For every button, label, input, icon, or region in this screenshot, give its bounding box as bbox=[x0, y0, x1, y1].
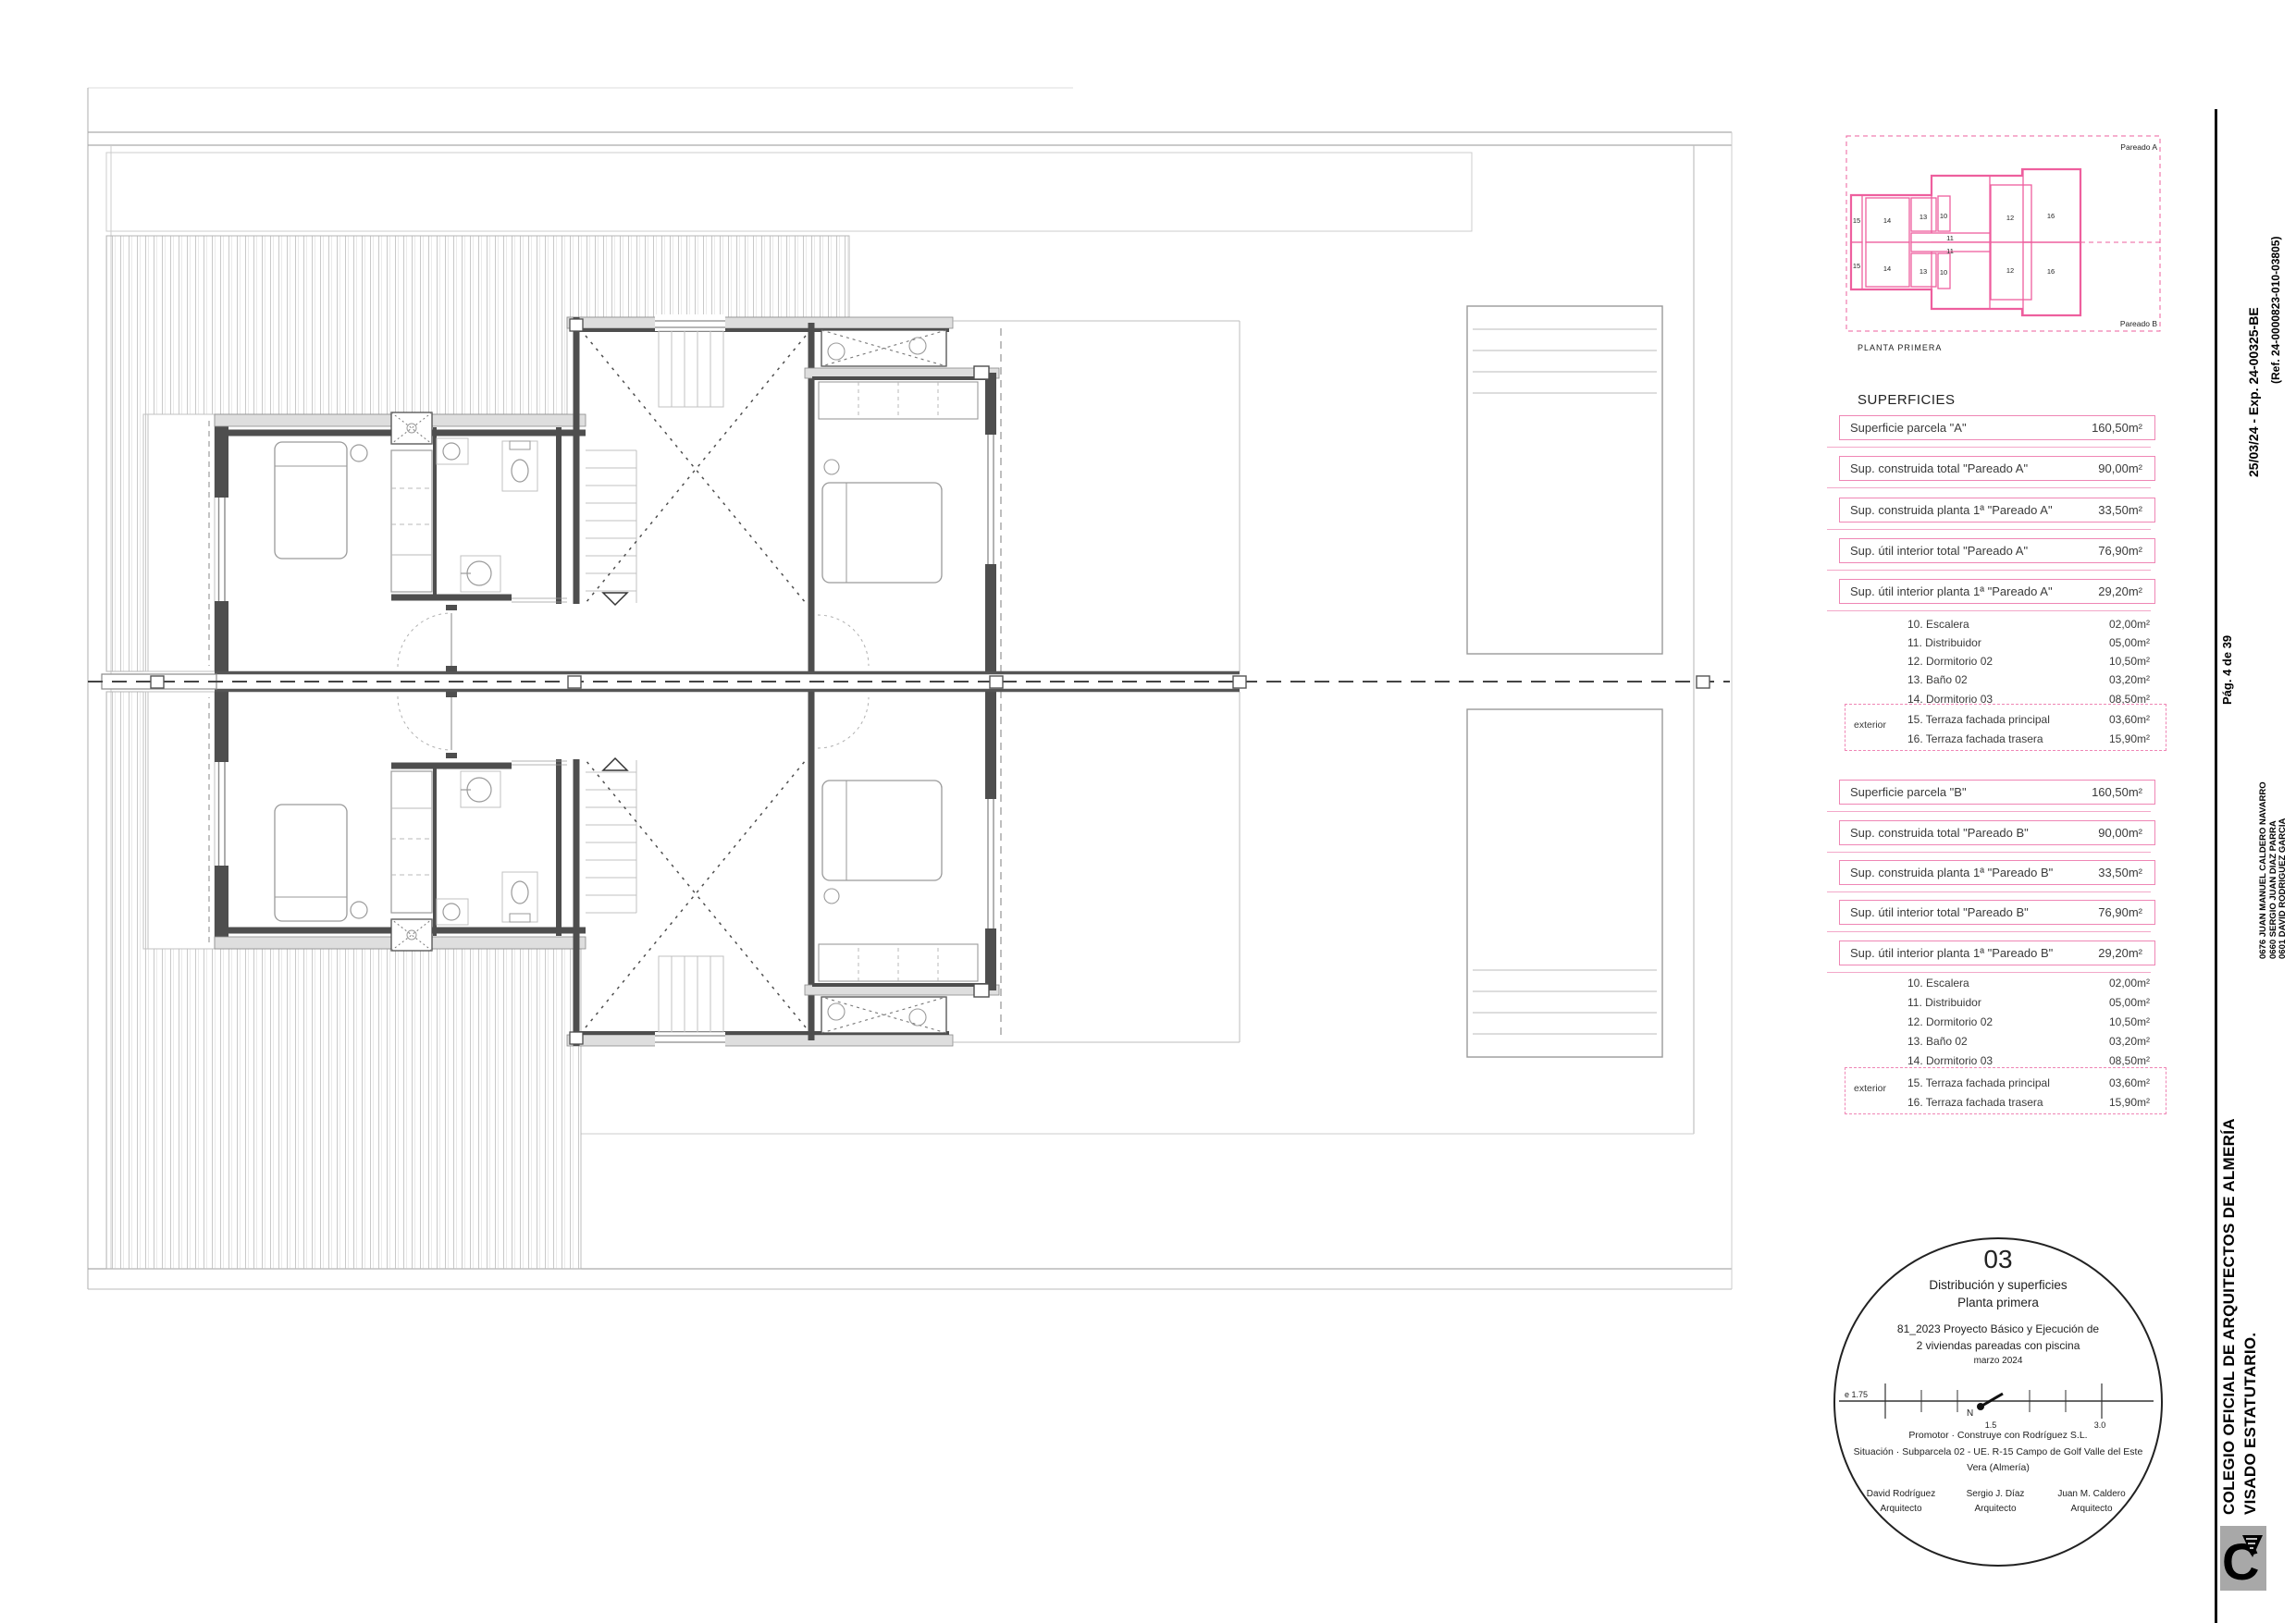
scale-tick-mid: 1.5 bbox=[1985, 1420, 1997, 1430]
exterior-group-box bbox=[1845, 1067, 2166, 1114]
svg-text:13: 13 bbox=[1920, 213, 1927, 221]
sheet-title: Distribución y superficies bbox=[1835, 1278, 2161, 1292]
scale-label: e 1.75 bbox=[1845, 1390, 1868, 1399]
plan-sheet: { "colors":{"accent_pink":"#ee5f9e","tab… bbox=[0, 0, 2296, 1623]
keyplan-unit-b bbox=[1851, 242, 2080, 315]
architect-role: Arquitecto bbox=[1859, 1504, 1943, 1514]
exterior-label: exterior bbox=[1854, 719, 1886, 731]
svg-text:13: 13 bbox=[1920, 267, 1927, 276]
architect-role: Arquitecto bbox=[1954, 1504, 2037, 1514]
room-row: 12. Dormitorio 0210,50m² bbox=[1907, 652, 2152, 670]
svg-text:14: 14 bbox=[1883, 264, 1891, 273]
situacion-line1: Situación · Subparcela 02 - UE. R-15 Cam… bbox=[1835, 1446, 2161, 1457]
sidebar-rule bbox=[2215, 109, 2217, 1623]
area-box: Superficie parcela "B"160,50m² bbox=[1839, 780, 2155, 805]
sheet-subtitle: Planta primera bbox=[1835, 1296, 2161, 1309]
room-row: 10. Escalera02,00m² bbox=[1907, 615, 2152, 633]
keyplan-label-pareado-b: Pareado B bbox=[2120, 319, 2157, 328]
pool-b bbox=[1467, 709, 1662, 1057]
room-row: 11. Distribuidor05,00m² bbox=[1907, 993, 2152, 1012]
graphic-scale: e 1.75 N 1.5 3.0 bbox=[1836, 1380, 2158, 1432]
keyplan-unit-a bbox=[1851, 169, 2080, 242]
svg-text:15: 15 bbox=[1853, 262, 1860, 270]
situacion-line2: Vera (Almería) bbox=[1835, 1462, 2161, 1473]
svg-text:11: 11 bbox=[1946, 234, 1954, 242]
roof-hatch-bottom bbox=[106, 692, 581, 1269]
project-line2: 2 viviendas pareadas con piscina bbox=[1835, 1339, 2161, 1352]
exterior-label: exterior bbox=[1854, 1083, 1886, 1094]
room-row: 12. Dormitorio 0210,50m² bbox=[1907, 1013, 2152, 1031]
project-line1: 81_2023 Proyecto Básico y Ejecución de bbox=[1835, 1322, 2161, 1335]
area-box: Sup. útil interior total "Pareado B"76,9… bbox=[1839, 900, 2155, 925]
svg-text:12: 12 bbox=[2006, 214, 2014, 222]
area-box: Sup. construida total "Pareado A"90,00m² bbox=[1839, 456, 2155, 481]
room-row: 10. Escalera02,00m² bbox=[1907, 974, 2152, 992]
area-box: Sup. construida total "Pareado B"90,00m² bbox=[1839, 820, 2155, 845]
colegio-logo-icon: C bbox=[2220, 1526, 2266, 1591]
architect-name: Sergio J. Díaz bbox=[1954, 1489, 2037, 1499]
north-label: N bbox=[1967, 1408, 1973, 1419]
area-box: Sup. construida planta 1ª "Pareado B"33,… bbox=[1839, 860, 2155, 885]
svg-text:14: 14 bbox=[1883, 216, 1891, 225]
area-box: Sup. útil interior planta 1ª "Pareado B"… bbox=[1839, 941, 2155, 965]
area-box: Superficie parcela "A"160,50m² bbox=[1839, 415, 2155, 440]
key-plan: 15 14 13 10 11 12 16 15 14 13 10 11 12 1… bbox=[1837, 131, 2170, 359]
svg-text:16: 16 bbox=[2047, 212, 2055, 220]
floor-plan-drawing bbox=[0, 0, 1758, 1623]
sidebar-org-line1: COLEGIO OFICIAL DE ARQUITECTOS DE ALMERÍ… bbox=[2220, 1118, 2239, 1515]
architect-name: David Rodríguez bbox=[1859, 1489, 1943, 1499]
sheet-number: 03 bbox=[1835, 1245, 2161, 1274]
sidebar-architect-ids: 0676 JUAN MANUEL CALDERO NAVARRO 0660 SE… bbox=[2259, 781, 2289, 959]
svg-text:10: 10 bbox=[1940, 268, 1947, 277]
area-box: Sup. construida planta 1ª "Pareado A"33,… bbox=[1839, 498, 2155, 523]
room-row: 11. Distribuidor05,00m² bbox=[1907, 633, 2152, 652]
exterior-group-box bbox=[1845, 704, 2166, 751]
svg-text:11: 11 bbox=[1946, 247, 1954, 255]
keyplan-caption: PLANTA PRIMERA bbox=[1858, 343, 1942, 352]
superficies-heading: SUPERFICIES bbox=[1858, 392, 1956, 408]
sidebar-date-exp: 25/03/24 - Exp. 24-00325-BE bbox=[2246, 307, 2261, 477]
pool-a bbox=[1467, 306, 1662, 654]
sidebar-ref: (Ref. 24-0000823-010-03805) bbox=[2269, 237, 2282, 384]
svg-text:10: 10 bbox=[1940, 212, 1947, 220]
architect-role: Arquitecto bbox=[2050, 1504, 2133, 1514]
scale-tick-end: 3.0 bbox=[2094, 1420, 2106, 1430]
keyplan-label-pareado-a: Pareado A bbox=[2120, 142, 2157, 152]
area-box: Sup. útil interior total "Pareado A"76,9… bbox=[1839, 538, 2155, 563]
room-row: 13. Baño 0203,20m² bbox=[1907, 1032, 2152, 1051]
room-row: 13. Baño 0203,20m² bbox=[1907, 670, 2152, 689]
sidebar-org-line2: VISADO ESTATUTARIO. bbox=[2241, 1333, 2260, 1515]
project-date: marzo 2024 bbox=[1835, 1356, 2161, 1366]
svg-text:15: 15 bbox=[1853, 216, 1860, 225]
svg-text:16: 16 bbox=[2047, 267, 2055, 276]
sidebar-page-ref: Pág. 4 de 39 bbox=[2220, 635, 2234, 705]
svg-text:12: 12 bbox=[2006, 266, 2014, 275]
architect-name: Juan M. Caldero bbox=[2050, 1489, 2133, 1499]
area-box: Sup. útil interior planta 1ª "Pareado A"… bbox=[1839, 579, 2155, 604]
party-wall-axis bbox=[88, 673, 1730, 691]
